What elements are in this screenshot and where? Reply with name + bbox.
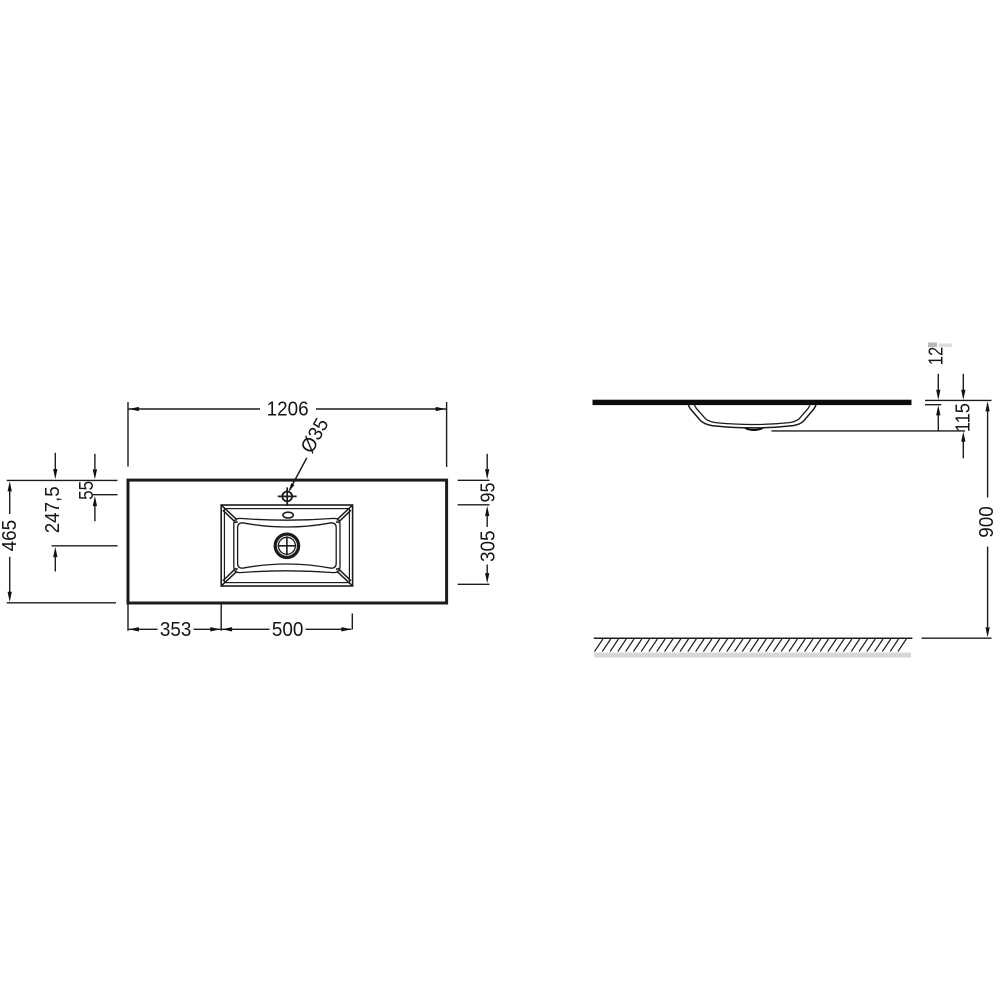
svg-text:305: 305 (477, 531, 499, 563)
svg-text:95: 95 (477, 483, 499, 503)
svg-text:12: 12 (926, 347, 948, 366)
svg-text:353: 353 (160, 619, 192, 641)
svg-text:900: 900 (976, 506, 998, 538)
svg-text:465: 465 (0, 520, 21, 552)
svg-text:500: 500 (272, 619, 304, 641)
svg-text:247,5: 247,5 (42, 486, 64, 533)
svg-text:1206: 1206 (267, 398, 309, 420)
svg-text:115: 115 (953, 403, 975, 432)
